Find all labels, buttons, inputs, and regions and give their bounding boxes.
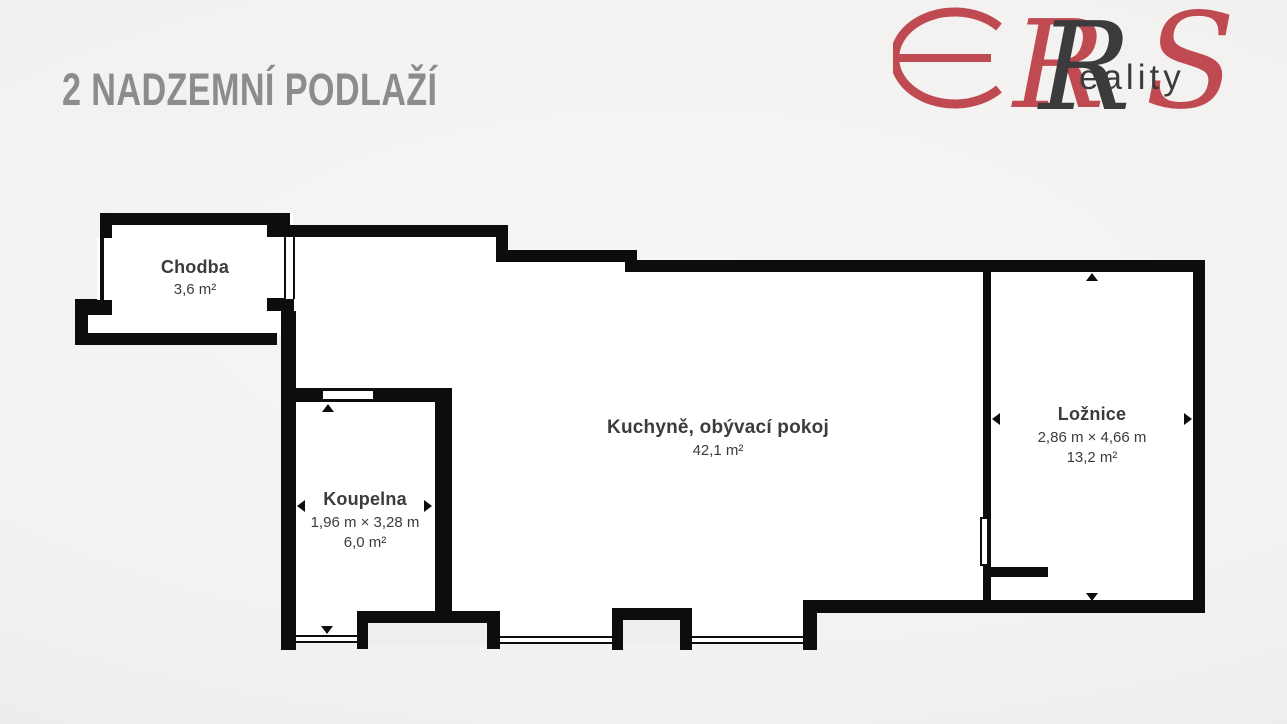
- room-name: Chodba: [115, 257, 275, 278]
- room-label-chodba: Chodba 3,6 m²: [115, 257, 275, 298]
- door-loznice: [980, 517, 989, 566]
- wall-top-main: [625, 260, 1205, 272]
- dimension-arrow-up-loznice: [1086, 273, 1098, 281]
- room-area: 42,1 m²: [567, 442, 869, 459]
- wall-chodba-top: [100, 213, 290, 225]
- room-name: Kuchyně, obývací pokoj: [567, 417, 869, 439]
- room-area: 6,0 m²: [285, 534, 445, 551]
- room-fill-chodba-foot: [86, 314, 146, 333]
- room-dimensions: 2,86 m × 4,66 m: [1011, 429, 1173, 446]
- dimension-arrow-left-loznice: [992, 413, 1000, 425]
- room-fill-kitchen-1: [290, 237, 508, 643]
- room-name: Koupelna: [285, 489, 445, 510]
- wall-loznice-right: [1193, 260, 1205, 613]
- room-name: Ložnice: [1011, 404, 1173, 425]
- wall-left-exterior: [281, 311, 296, 650]
- wall-chodba-left-top: [100, 213, 112, 240]
- page-title: 2 NADZEMNÍ PODLAŽÍ: [62, 64, 437, 116]
- wall-notch1-top: [357, 611, 500, 623]
- wall-kitchen-top-a: [267, 225, 508, 237]
- room-area: 13,2 m²: [1011, 449, 1173, 466]
- wall-chodba-bottom: [75, 333, 277, 345]
- room-label-kuchyne: Kuchyně, obývací pokoj 42,1 m²: [567, 417, 869, 459]
- room-label-loznice: Ložnice 2,86 m × 4,66 m 13,2 m²: [1011, 404, 1173, 466]
- dimension-arrow-down-loznice: [1086, 593, 1098, 601]
- logo-wordmark: eality: [1079, 58, 1185, 97]
- window-living-1: [500, 636, 612, 644]
- window-koupelna-bottom: [296, 635, 357, 643]
- wall-loznice-stub: [990, 567, 1048, 577]
- floorplan-page: 2 NADZEMNÍ PODLAŽÍ R S R eality: [0, 0, 1287, 724]
- window-living-2: [692, 636, 803, 644]
- ers-reality-logo: R S R eality: [893, 3, 1277, 125]
- room-area: 3,6 m²: [115, 281, 275, 298]
- room-label-koupelna: Koupelna 1,96 m × 3,28 m 6,0 m²: [285, 489, 445, 551]
- page-title-wrap: 2 NADZEMNÍ PODLAŽÍ: [62, 64, 556, 116]
- door-koupelna: [323, 391, 373, 399]
- dimension-arrow-down-koupelna: [321, 626, 333, 634]
- wall-kitchen-top-b: [496, 250, 637, 262]
- window-chodba-left-line: [100, 238, 104, 300]
- dimension-arrow-right-loznice: [1184, 413, 1192, 425]
- wall-notch2-right: [680, 608, 692, 650]
- wall-notch1-right: [487, 611, 500, 649]
- wall-bottom-right: [803, 600, 1205, 613]
- room-dimensions: 1,96 m × 3,28 m: [285, 514, 445, 531]
- partition-chodba-kitchen: [284, 237, 295, 299]
- wall-chodba-right-block: [267, 298, 294, 311]
- exterior-notch-2: [623, 620, 680, 644]
- exterior-notch-1: [368, 623, 487, 645]
- dimension-arrow-up-koupelna: [322, 404, 334, 412]
